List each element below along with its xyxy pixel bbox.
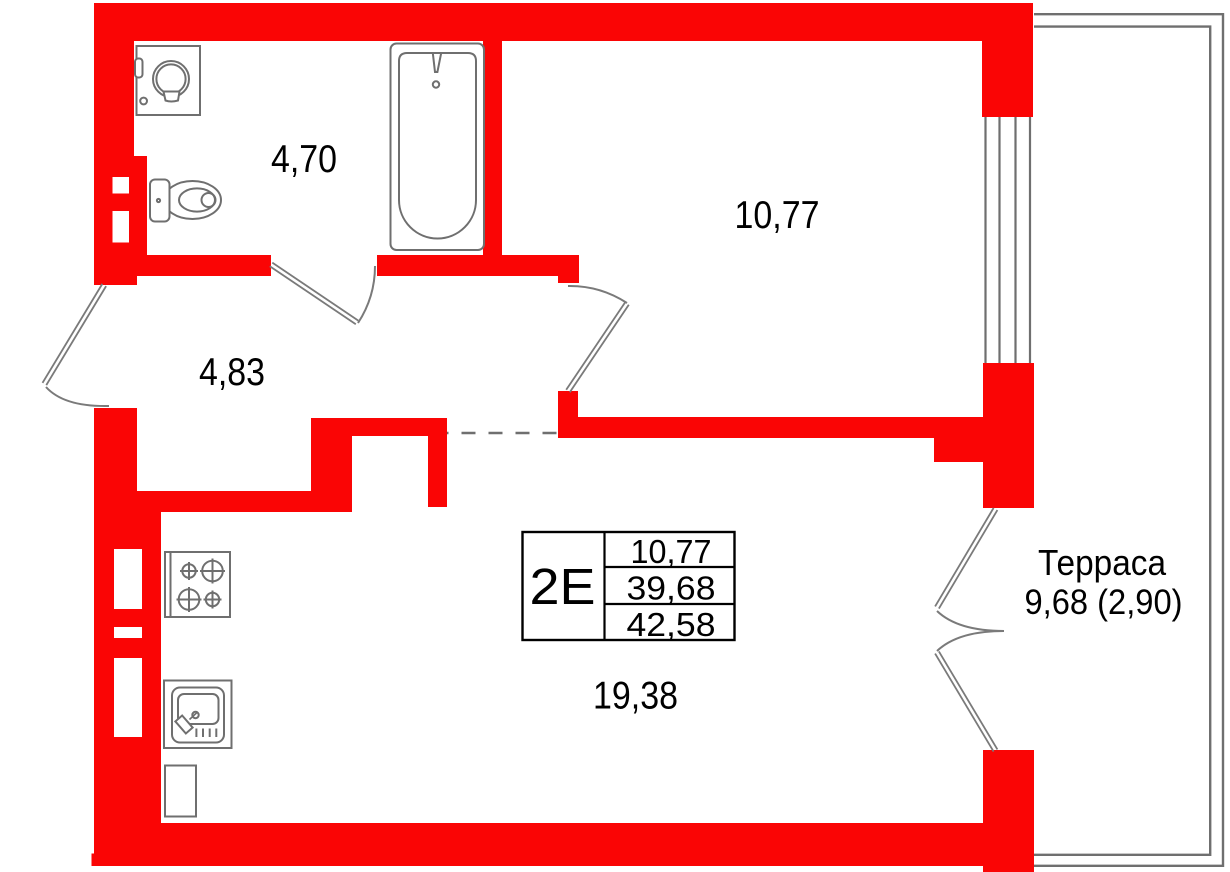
svg-text:2Е: 2Е [530,558,596,615]
svg-text:4,83: 4,83 [199,351,265,394]
svg-text:4,70: 4,70 [271,138,337,181]
svg-text:Терраса: Терраса [1038,542,1167,583]
svg-text:10,77: 10,77 [735,194,820,237]
svg-text:42,58: 42,58 [627,606,716,643]
svg-text:10,77: 10,77 [631,533,712,570]
svg-text:19,38: 19,38 [593,675,678,718]
svg-text:39,68: 39,68 [627,570,716,607]
svg-text:9,68 (2,90): 9,68 (2,90) [1025,583,1183,622]
